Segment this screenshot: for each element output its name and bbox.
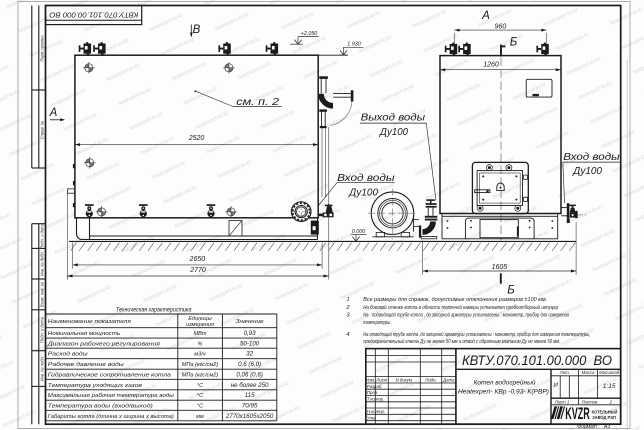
svg-text:Heatexpert- КВр -0,93- К(РВР): Heatexpert- КВр -0,93- К(РВР)	[458, 388, 549, 395]
svg-text:4: 4	[346, 332, 349, 338]
svg-text:Гидравлическое сопротивление к: Гидравлическое сопротивление котла	[48, 372, 172, 378]
svg-text:В: В	[193, 24, 201, 36]
svg-text:Вход воды: Вход воды	[563, 152, 620, 163]
svg-text:2520: 2520	[188, 135, 205, 142]
svg-text:МПа (кгс/см2): МПа (кгс/см2)	[182, 372, 219, 378]
svg-text:Масштаб: Масштаб	[599, 370, 620, 375]
svg-text:Подп. и дата: Подп. и дата	[39, 222, 44, 248]
svg-text:Диапазон рабочего регулировани: Диапазон рабочего регулирования	[47, 341, 161, 347]
svg-text:МПа (кгс/см2): МПа (кгс/см2)	[182, 362, 219, 368]
svg-text:Утв.: Утв.	[367, 415, 377, 420]
svg-text:ЗАВОД РЭП: ЗАВОД РЭП	[592, 415, 616, 420]
svg-text:Лист: Лист	[554, 399, 566, 404]
svg-text:Максимальная рабочая температу: Максимальная рабочая температура воды	[48, 393, 175, 399]
svg-text:2770х1605х2050: 2770х1605х2050	[225, 413, 274, 420]
svg-text:50-100: 50-100	[240, 340, 260, 347]
svg-text:Т.контр.: Т.контр.	[367, 397, 384, 402]
svg-text:2: 2	[608, 399, 612, 404]
svg-text:Ду100: Ду100	[572, 166, 602, 177]
svg-text:Наименование показателя: Наименование показателя	[48, 319, 132, 325]
svg-text:А3: А3	[603, 424, 610, 430]
svg-text:Подп. и дата: Подп. и дата	[39, 317, 44, 343]
svg-text:мм: мм	[196, 414, 204, 420]
svg-text:Лит.: Лит.	[559, 370, 570, 375]
svg-text:Все размеры для справок, допус: Все размеры для справок, допустимые откл…	[363, 297, 547, 303]
svg-text:Единицы: Единицы	[188, 316, 211, 322]
svg-text:°С: °С	[197, 393, 204, 399]
svg-text:Номинальная мощность: Номинальная мощность	[48, 331, 120, 337]
svg-text:Листов: Листов	[581, 399, 598, 404]
svg-text:Выход воды: Выход воды	[361, 113, 426, 124]
svg-text:Н.контр.: Н.контр.	[367, 409, 385, 414]
svg-text:115: 115	[245, 392, 255, 399]
svg-text:Ду100: Ду100	[379, 127, 408, 138]
svg-text:%: %	[198, 341, 203, 347]
svg-text:Расход воды: Расход воды	[48, 352, 89, 358]
svg-text:МВт: МВт	[193, 331, 206, 337]
svg-text:0,06 (0,6): 0,06 (0,6)	[236, 371, 262, 378]
svg-text:Рабочее давление воды: Рабочее давление воды	[48, 362, 125, 368]
svg-text:0,6 (6,0): 0,6 (6,0)	[238, 361, 261, 368]
svg-text:1605: 1605	[492, 264, 508, 271]
svg-text:Взам. инв. №: Взам. инв. №	[39, 281, 44, 307]
svg-text:А: А	[49, 107, 58, 119]
svg-text:КВТУ.070.101.00.000 ВО: КВТУ.070.101.00.000 ВО	[49, 10, 138, 19]
svg-text:Разраб.: Разраб.	[367, 384, 383, 389]
svg-text:70/95: 70/95	[242, 402, 258, 409]
svg-text:960: 960	[495, 24, 507, 31]
svg-text:Ду100: Ду100	[348, 187, 378, 198]
svg-text:°С: °С	[197, 403, 204, 409]
svg-text:2650: 2650	[189, 256, 206, 263]
svg-text:Котел водогрейный: Котел водогрейный	[474, 379, 536, 387]
svg-text:Лист: Лист	[375, 377, 387, 382]
svg-text:1: 1	[346, 297, 349, 303]
svg-text:предохранительный клапан Ду не: предохранительный клапан Ду не менее 50 …	[363, 338, 560, 345]
svg-text:Значение: Значение	[236, 319, 265, 325]
svg-text:Перв. примен.: Перв. примен.	[39, 34, 44, 61]
svg-text:м3/ч: м3/ч	[194, 352, 205, 358]
svg-text:см. п. 2: см. п. 2	[236, 97, 279, 108]
svg-text:2770: 2770	[189, 267, 206, 274]
svg-text:Б: Б	[507, 285, 515, 297]
svg-text:Температура уходящих газов: Температура уходящих газов	[48, 383, 142, 389]
svg-text:Техническая характеристика: Техническая характеристика	[116, 307, 192, 314]
svg-text:Пров.: Пров.	[367, 390, 378, 395]
svg-text:N докум.: N докум.	[396, 377, 413, 382]
svg-text:измерения: измерения	[186, 322, 214, 328]
svg-text:А: А	[481, 10, 490, 22]
svg-text:Габариты котла (длинна х ширин: Габариты котла (длинна х ширина х высота…	[48, 414, 174, 420]
svg-text:1:15: 1:15	[603, 383, 616, 390]
svg-text:+2.050: +2.050	[301, 31, 318, 37]
svg-text:Изм.: Изм.	[366, 377, 375, 382]
svg-text:32: 32	[246, 351, 253, 358]
svg-text:Формат: Формат	[577, 424, 597, 430]
svg-text:Масса: Масса	[582, 370, 595, 375]
svg-text:°С: °С	[197, 383, 204, 389]
svg-text:KVZR: KVZR	[565, 405, 590, 423]
svg-text:На отводящей трубе котла ,до з: На отводящей трубе котла ,до запорной ар…	[363, 331, 590, 338]
svg-text:0,93: 0,93	[244, 330, 257, 337]
svg-text:Инв. № дубл.: Инв. № дубл.	[39, 251, 44, 276]
svg-text:1260: 1260	[483, 61, 499, 68]
svg-text:Подп.: Подп.	[425, 377, 436, 382]
svg-text:На боковой стенке котла в обла: На боковой стенке котла в области топочн…	[363, 304, 559, 311]
svg-text:1.930: 1.930	[347, 42, 361, 48]
svg-text:Справ. №: Справ. №	[39, 120, 44, 139]
svg-text:Дата: Дата	[442, 377, 455, 382]
svg-text:Температура воды (вход/выход): Температура воды (вход/выход)	[48, 403, 153, 409]
svg-text:Б: Б	[510, 37, 518, 49]
svg-text:Инв. № подл.: Инв. № подл.	[39, 356, 44, 381]
svg-text:И: И	[553, 382, 558, 389]
svg-text:1: 1	[567, 399, 570, 404]
svg-text:На подводящей трубе котла ,: На подводящей трубе котла , до запорной …	[363, 312, 569, 319]
svg-text:КВТУ.070.101.00.000 ВО: КВТУ.070.101.00.000 ВО	[462, 353, 612, 369]
svg-text:температуры.: температуры.	[363, 320, 391, 326]
svg-text:не более 250: не более 250	[231, 382, 269, 389]
svg-text:КОТЕЛЬНЫЙ: КОТЕЛЬНЫЙ	[592, 408, 618, 415]
